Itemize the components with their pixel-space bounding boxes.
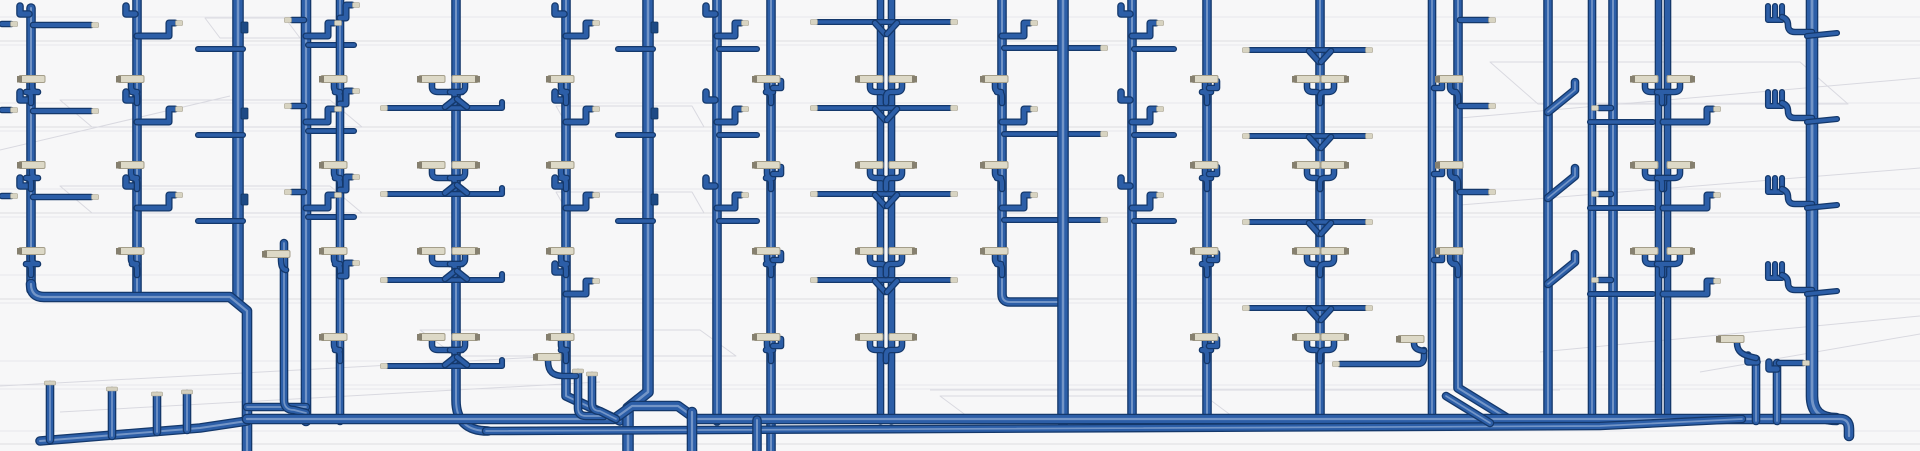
pipe-end-coupling bbox=[593, 21, 600, 26]
pipe-fitting bbox=[1435, 248, 1463, 255]
pipe-fitting bbox=[1292, 76, 1320, 83]
wireframe-slab-edge bbox=[60, 382, 600, 412]
pipe-layer bbox=[2, 0, 1849, 451]
pipe-fitting bbox=[752, 248, 780, 255]
pipe-fitting bbox=[1190, 334, 1218, 341]
pipe-end-coupling bbox=[381, 278, 388, 283]
pipe-end-coupling bbox=[593, 107, 600, 112]
pipe-end-coupling bbox=[1489, 190, 1496, 195]
wireframe-slab-edge bbox=[1540, 316, 1920, 352]
crossing-branch-pipe bbox=[1807, 119, 1837, 122]
pipe-coupling-tab bbox=[241, 194, 248, 205]
wireframe-slab-edge bbox=[1460, 78, 1920, 118]
pipe-fitting bbox=[1435, 76, 1463, 83]
pipe-fitting bbox=[889, 76, 917, 83]
crossing-branch-pipe bbox=[1807, 33, 1837, 36]
pipe-end-coupling bbox=[811, 278, 818, 283]
pipe-fitting bbox=[855, 76, 883, 83]
main-pipe bbox=[1340, 350, 1424, 364]
pipe-fitting bbox=[319, 248, 347, 255]
pipe-end-coupling bbox=[742, 107, 749, 112]
pipe-fitting bbox=[1667, 76, 1695, 83]
pipe-end-coupling bbox=[1101, 218, 1108, 223]
pipe-fitting bbox=[17, 162, 45, 169]
pipe-end-coupling bbox=[285, 18, 292, 23]
pipe-fitting bbox=[980, 248, 1008, 255]
pipe-end-coupling bbox=[951, 278, 958, 283]
pipe-fitting bbox=[1667, 162, 1695, 169]
pipe-fitting bbox=[980, 76, 1008, 83]
pipe-end-coupling bbox=[381, 192, 388, 197]
pipe-end-coupling bbox=[92, 23, 99, 28]
pipe-fitting bbox=[1435, 162, 1463, 169]
pipe-fitting bbox=[533, 354, 561, 361]
pipe-fitting bbox=[752, 76, 780, 83]
stub-pipe-cap bbox=[573, 369, 584, 373]
pipe-fitting bbox=[1292, 334, 1320, 341]
pipe-fitting bbox=[1292, 162, 1320, 169]
pipe-end-coupling bbox=[11, 22, 18, 27]
pipe-fitting bbox=[319, 334, 347, 341]
pipe-end-coupling bbox=[381, 106, 388, 111]
stub-pipe-cap bbox=[107, 387, 118, 391]
pipe-end-coupling bbox=[1101, 132, 1108, 137]
pipe-end-coupling bbox=[1333, 362, 1340, 367]
pipe-end-coupling bbox=[92, 109, 99, 114]
pipe-fitting bbox=[452, 248, 480, 255]
riser-pipe bbox=[628, 0, 648, 451]
pipe-fitting bbox=[1190, 76, 1218, 83]
pipe-coupling-tab bbox=[651, 108, 658, 119]
branch-arm-pipe bbox=[137, 109, 175, 122]
pipe-end-coupling bbox=[742, 21, 749, 26]
pipe-fitting bbox=[889, 334, 917, 341]
pipe-end-coupling bbox=[811, 106, 818, 111]
pipe-fitting bbox=[889, 162, 917, 169]
pipe-end-coupling bbox=[1031, 21, 1038, 26]
pipe-fitting bbox=[1190, 162, 1218, 169]
pipe-fitting bbox=[417, 334, 445, 341]
piping-view-viewport bbox=[0, 0, 1920, 451]
pipe-fitting bbox=[855, 334, 883, 341]
pipe-fitting bbox=[1630, 76, 1658, 83]
pipe-end-coupling bbox=[1366, 220, 1373, 225]
pipe-end-coupling bbox=[1366, 134, 1373, 139]
pipe-end-coupling bbox=[1031, 107, 1038, 112]
pipe-coupling-tab bbox=[651, 194, 658, 205]
pipe-end-coupling bbox=[176, 21, 183, 26]
pipe-fitting bbox=[319, 162, 347, 169]
pipe-fitting bbox=[1292, 248, 1320, 255]
pipe-fitting bbox=[980, 162, 1008, 169]
stub-pipe-cap bbox=[152, 392, 163, 396]
pipe-fitting bbox=[1716, 336, 1744, 343]
pipe-end-coupling bbox=[951, 20, 958, 25]
pipe-end-coupling bbox=[335, 21, 342, 26]
pipe-fitting bbox=[855, 248, 883, 255]
pipe-end-coupling bbox=[11, 108, 18, 113]
pipe-end-coupling bbox=[1101, 46, 1108, 51]
pipe-coupling-tab bbox=[241, 108, 248, 119]
pipe-end-coupling bbox=[1803, 361, 1810, 366]
pipe-end-coupling bbox=[1714, 107, 1721, 112]
pipe-fitting bbox=[546, 76, 574, 83]
pipe-fitting bbox=[1321, 334, 1349, 341]
pipe-end-coupling bbox=[176, 107, 183, 112]
pipe-end-coupling bbox=[335, 107, 342, 112]
pipe-end-coupling bbox=[1714, 279, 1721, 284]
pipe-fitting bbox=[855, 162, 883, 169]
pipe-fitting bbox=[17, 76, 45, 83]
pipe-fitting bbox=[1321, 248, 1349, 255]
riser-pipe bbox=[1458, 0, 1510, 420]
pipe-end-coupling bbox=[353, 261, 360, 266]
pipe-fitting bbox=[319, 76, 347, 83]
pipe-end-coupling bbox=[1243, 306, 1250, 311]
pipe-end-coupling bbox=[742, 193, 749, 198]
crossing-branch-pipe bbox=[1807, 291, 1837, 294]
pipe-end-coupling bbox=[1243, 220, 1250, 225]
pipe-end-coupling bbox=[92, 195, 99, 200]
pipe-fitting bbox=[1321, 162, 1349, 169]
pipe-end-coupling bbox=[1243, 134, 1250, 139]
pipe-fitting bbox=[452, 76, 480, 83]
pipe-end-coupling bbox=[1366, 48, 1373, 53]
stub-pipe-cap bbox=[182, 390, 193, 394]
pipe-fitting bbox=[452, 334, 480, 341]
pipe-end-coupling bbox=[285, 104, 292, 109]
pipe-fitting bbox=[116, 76, 144, 83]
pipe-end-coupling bbox=[593, 279, 600, 284]
pipe-fitting bbox=[546, 334, 574, 341]
pipe-fitting bbox=[1190, 248, 1218, 255]
pipe-end-coupling bbox=[1366, 306, 1373, 311]
pipe-end-coupling bbox=[1157, 21, 1164, 26]
pipe-end-coupling bbox=[1592, 106, 1599, 111]
pipe-fitting bbox=[889, 248, 917, 255]
piping-isometric-view bbox=[0, 0, 1920, 451]
pipe-fitting bbox=[1630, 248, 1658, 255]
pipe-end-coupling bbox=[353, 3, 360, 8]
pipe-end-coupling bbox=[335, 193, 342, 198]
pipe-end-coupling bbox=[1592, 278, 1599, 283]
pipe-end-coupling bbox=[1592, 192, 1599, 197]
pipe-end-coupling bbox=[593, 193, 600, 198]
pipe-fitting bbox=[752, 334, 780, 341]
pipe-fitting bbox=[546, 248, 574, 255]
pipe-fitting bbox=[116, 162, 144, 169]
pipe-fitting bbox=[1396, 336, 1424, 343]
pipe-fitting bbox=[546, 162, 574, 169]
pipe-end-coupling bbox=[951, 192, 958, 197]
pipe-coupling-tab bbox=[651, 22, 658, 33]
pipe-end-coupling bbox=[1243, 48, 1250, 53]
crossing-branch-pipe bbox=[1807, 205, 1837, 208]
pipe-fitting bbox=[417, 248, 445, 255]
branch-arm-pipe bbox=[137, 195, 175, 208]
pipe-end-coupling bbox=[1489, 104, 1496, 109]
pipe-end-coupling bbox=[1157, 193, 1164, 198]
pipe-end-coupling bbox=[1489, 18, 1496, 23]
pipe-end-coupling bbox=[951, 106, 958, 111]
pipe-end-coupling bbox=[811, 20, 818, 25]
wireframe-slab-edge bbox=[1460, 168, 1920, 205]
pipe-fitting bbox=[116, 248, 144, 255]
stub-pipe-cap bbox=[587, 372, 598, 376]
stub-pipe-cap bbox=[45, 381, 56, 385]
pipe-end-coupling bbox=[1714, 193, 1721, 198]
main-pipe bbox=[1414, 343, 1424, 351]
pipe-fitting bbox=[417, 162, 445, 169]
pipe-end-coupling bbox=[11, 194, 18, 199]
pipe-fitting bbox=[1630, 162, 1658, 169]
pipe-fitting bbox=[752, 162, 780, 169]
main-pipe bbox=[1737, 343, 1756, 358]
main-pipe bbox=[592, 376, 616, 419]
pipe-end-coupling bbox=[381, 364, 388, 369]
pipe-end-coupling bbox=[176, 193, 183, 198]
pipe-end-coupling bbox=[353, 175, 360, 180]
pipe-end-coupling bbox=[811, 192, 818, 197]
pipe-end-coupling bbox=[353, 89, 360, 94]
branch-arm-pipe bbox=[137, 23, 175, 36]
pipe-end-coupling bbox=[1031, 193, 1038, 198]
pipe-fitting bbox=[1321, 76, 1349, 83]
pipe-fitting bbox=[452, 162, 480, 169]
pipe-fitting bbox=[417, 76, 445, 83]
pipe-end-coupling bbox=[285, 190, 292, 195]
pipe-end-coupling bbox=[1157, 107, 1164, 112]
pipe-coupling-tab bbox=[241, 22, 248, 33]
pipe-fitting bbox=[262, 251, 290, 258]
pipe-fitting bbox=[1667, 248, 1695, 255]
pipe-fitting bbox=[17, 248, 45, 255]
